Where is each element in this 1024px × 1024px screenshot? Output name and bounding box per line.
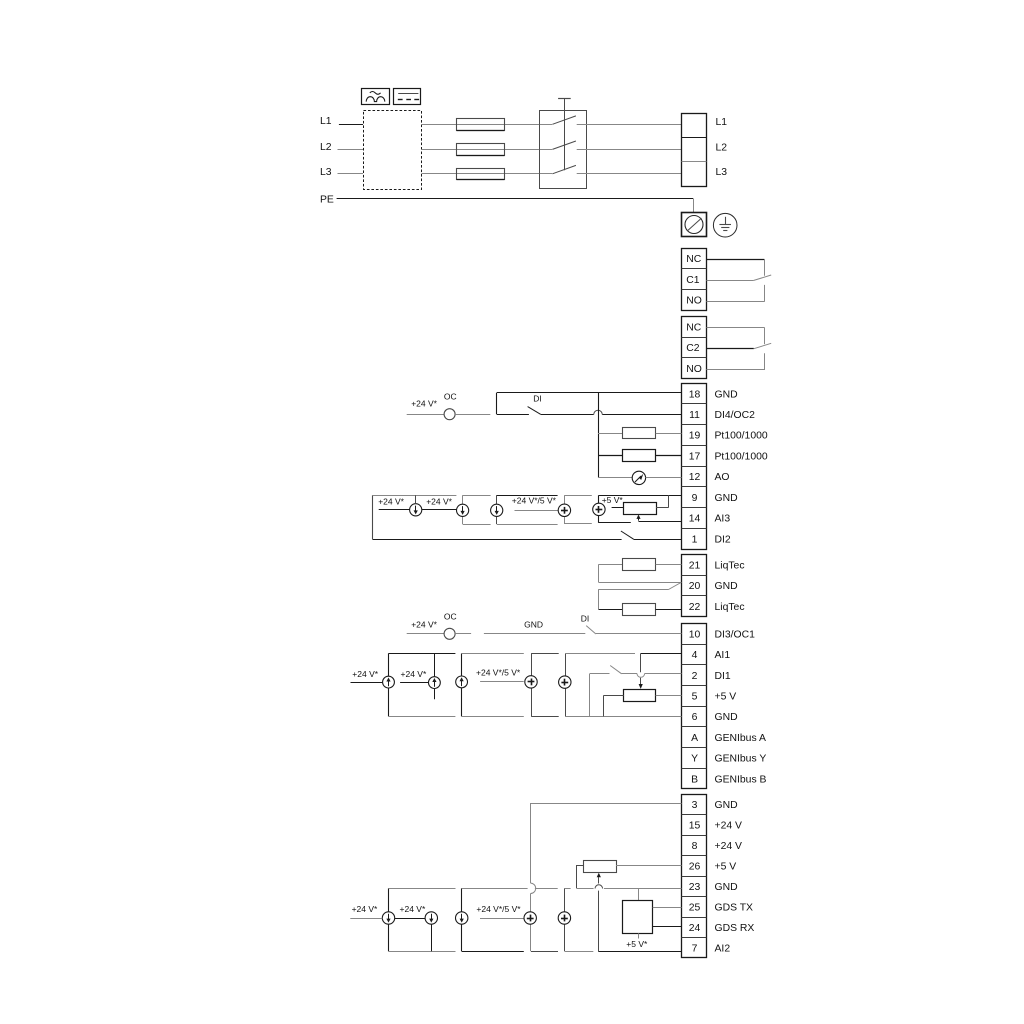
svg-text:4: 4 bbox=[692, 650, 698, 661]
svg-text:11: 11 bbox=[689, 410, 700, 421]
svg-text:+5 V: +5 V bbox=[715, 862, 737, 873]
svg-text:+5 V: +5 V bbox=[715, 691, 737, 702]
svg-text:GND: GND bbox=[524, 620, 543, 630]
svg-text:GENIbus A: GENIbus A bbox=[715, 733, 766, 744]
svg-text:+24 V*: +24 V* bbox=[426, 496, 452, 506]
svg-text:26: 26 bbox=[689, 862, 701, 873]
svg-text:NC: NC bbox=[686, 254, 702, 265]
svg-text:GENIbus Y: GENIbus Y bbox=[715, 754, 767, 765]
svg-text:Pt100/1000: Pt100/1000 bbox=[715, 431, 768, 442]
svg-text:GND: GND bbox=[715, 581, 738, 592]
svg-text:L2: L2 bbox=[716, 142, 728, 153]
svg-text:A: A bbox=[691, 733, 698, 744]
svg-text:+24 V*/5 V*: +24 V*/5 V* bbox=[476, 667, 521, 677]
svg-text:9: 9 bbox=[692, 493, 698, 504]
svg-text:+24 V*: +24 V* bbox=[352, 904, 378, 914]
svg-text:LiqTec: LiqTec bbox=[715, 602, 745, 613]
svg-text:22: 22 bbox=[689, 602, 701, 613]
svg-text:Pt100/1000: Pt100/1000 bbox=[715, 451, 768, 462]
svg-text:GENIbus B: GENIbus B bbox=[715, 774, 767, 785]
svg-text:Y: Y bbox=[691, 754, 698, 765]
svg-text:C2: C2 bbox=[686, 343, 700, 354]
svg-text:DI4/OC2: DI4/OC2 bbox=[715, 410, 756, 421]
svg-text:GND: GND bbox=[715, 882, 738, 893]
svg-text:L2: L2 bbox=[320, 142, 332, 153]
svg-text:1: 1 bbox=[692, 534, 698, 545]
svg-text:20: 20 bbox=[689, 581, 701, 592]
svg-text:23: 23 bbox=[689, 882, 701, 893]
svg-text:L3: L3 bbox=[320, 167, 332, 178]
svg-text:5: 5 bbox=[692, 691, 698, 702]
svg-text:DI2: DI2 bbox=[715, 534, 731, 545]
svg-text:L3: L3 bbox=[716, 167, 728, 178]
svg-text:12: 12 bbox=[689, 472, 701, 483]
svg-text:+24 V*: +24 V* bbox=[401, 669, 427, 679]
svg-text:14: 14 bbox=[689, 514, 701, 525]
svg-text:25: 25 bbox=[689, 903, 701, 914]
svg-text:OC: OC bbox=[444, 611, 457, 621]
svg-text:B: B bbox=[691, 774, 698, 785]
svg-text:C1: C1 bbox=[686, 275, 700, 286]
svg-text:GND: GND bbox=[715, 493, 738, 504]
svg-text:19: 19 bbox=[689, 431, 701, 442]
svg-text:+24 V: +24 V bbox=[715, 841, 743, 852]
svg-text:DI1: DI1 bbox=[715, 671, 731, 682]
svg-text:DI: DI bbox=[581, 613, 590, 623]
svg-text:+24 V*/5 V*: +24 V*/5 V* bbox=[476, 904, 521, 914]
svg-text:+5 V*: +5 V* bbox=[602, 495, 624, 505]
svg-text:2: 2 bbox=[692, 671, 698, 682]
svg-text:DI: DI bbox=[533, 393, 542, 403]
svg-text:NO: NO bbox=[686, 296, 702, 307]
svg-text:L1: L1 bbox=[320, 116, 332, 127]
svg-text:LiqTec: LiqTec bbox=[715, 560, 745, 571]
svg-text:AO: AO bbox=[715, 472, 730, 483]
svg-text:PE: PE bbox=[320, 195, 334, 206]
svg-text:AI1: AI1 bbox=[715, 650, 731, 661]
svg-text:+24 V*: +24 V* bbox=[411, 620, 437, 630]
svg-text:GND: GND bbox=[715, 712, 738, 723]
svg-text:OC: OC bbox=[444, 391, 457, 401]
svg-text:8: 8 bbox=[692, 841, 698, 852]
svg-text:+24 V: +24 V bbox=[715, 821, 743, 832]
svg-text:+24 V*: +24 V* bbox=[411, 398, 437, 408]
svg-text:24: 24 bbox=[689, 923, 701, 934]
svg-text:3: 3 bbox=[692, 800, 698, 811]
svg-text:GND: GND bbox=[715, 389, 738, 400]
svg-text:+24 V*: +24 V* bbox=[400, 904, 426, 914]
svg-text:+24 V*/5 V*: +24 V*/5 V* bbox=[512, 496, 557, 506]
svg-text:7: 7 bbox=[692, 943, 698, 954]
svg-text:6: 6 bbox=[692, 712, 698, 723]
svg-text:18: 18 bbox=[689, 389, 701, 400]
svg-text:GDS RX: GDS RX bbox=[715, 923, 755, 934]
svg-text:GND: GND bbox=[715, 800, 738, 811]
svg-text:10: 10 bbox=[689, 629, 701, 640]
svg-text:+5 V*: +5 V* bbox=[626, 939, 648, 949]
svg-text:+24 V*: +24 V* bbox=[352, 669, 378, 679]
svg-text:17: 17 bbox=[689, 451, 701, 462]
svg-text:DI3/OC1: DI3/OC1 bbox=[715, 629, 756, 640]
svg-text:21: 21 bbox=[689, 560, 701, 571]
svg-text:15: 15 bbox=[689, 821, 701, 832]
svg-text:NC: NC bbox=[686, 322, 702, 333]
svg-text:L1: L1 bbox=[716, 117, 728, 128]
svg-text:NO: NO bbox=[686, 364, 702, 375]
svg-text:AI3: AI3 bbox=[715, 514, 731, 525]
svg-text:GDS TX: GDS TX bbox=[715, 903, 754, 914]
svg-text:AI2: AI2 bbox=[715, 943, 731, 954]
svg-text:+24 V*: +24 V* bbox=[378, 496, 404, 506]
